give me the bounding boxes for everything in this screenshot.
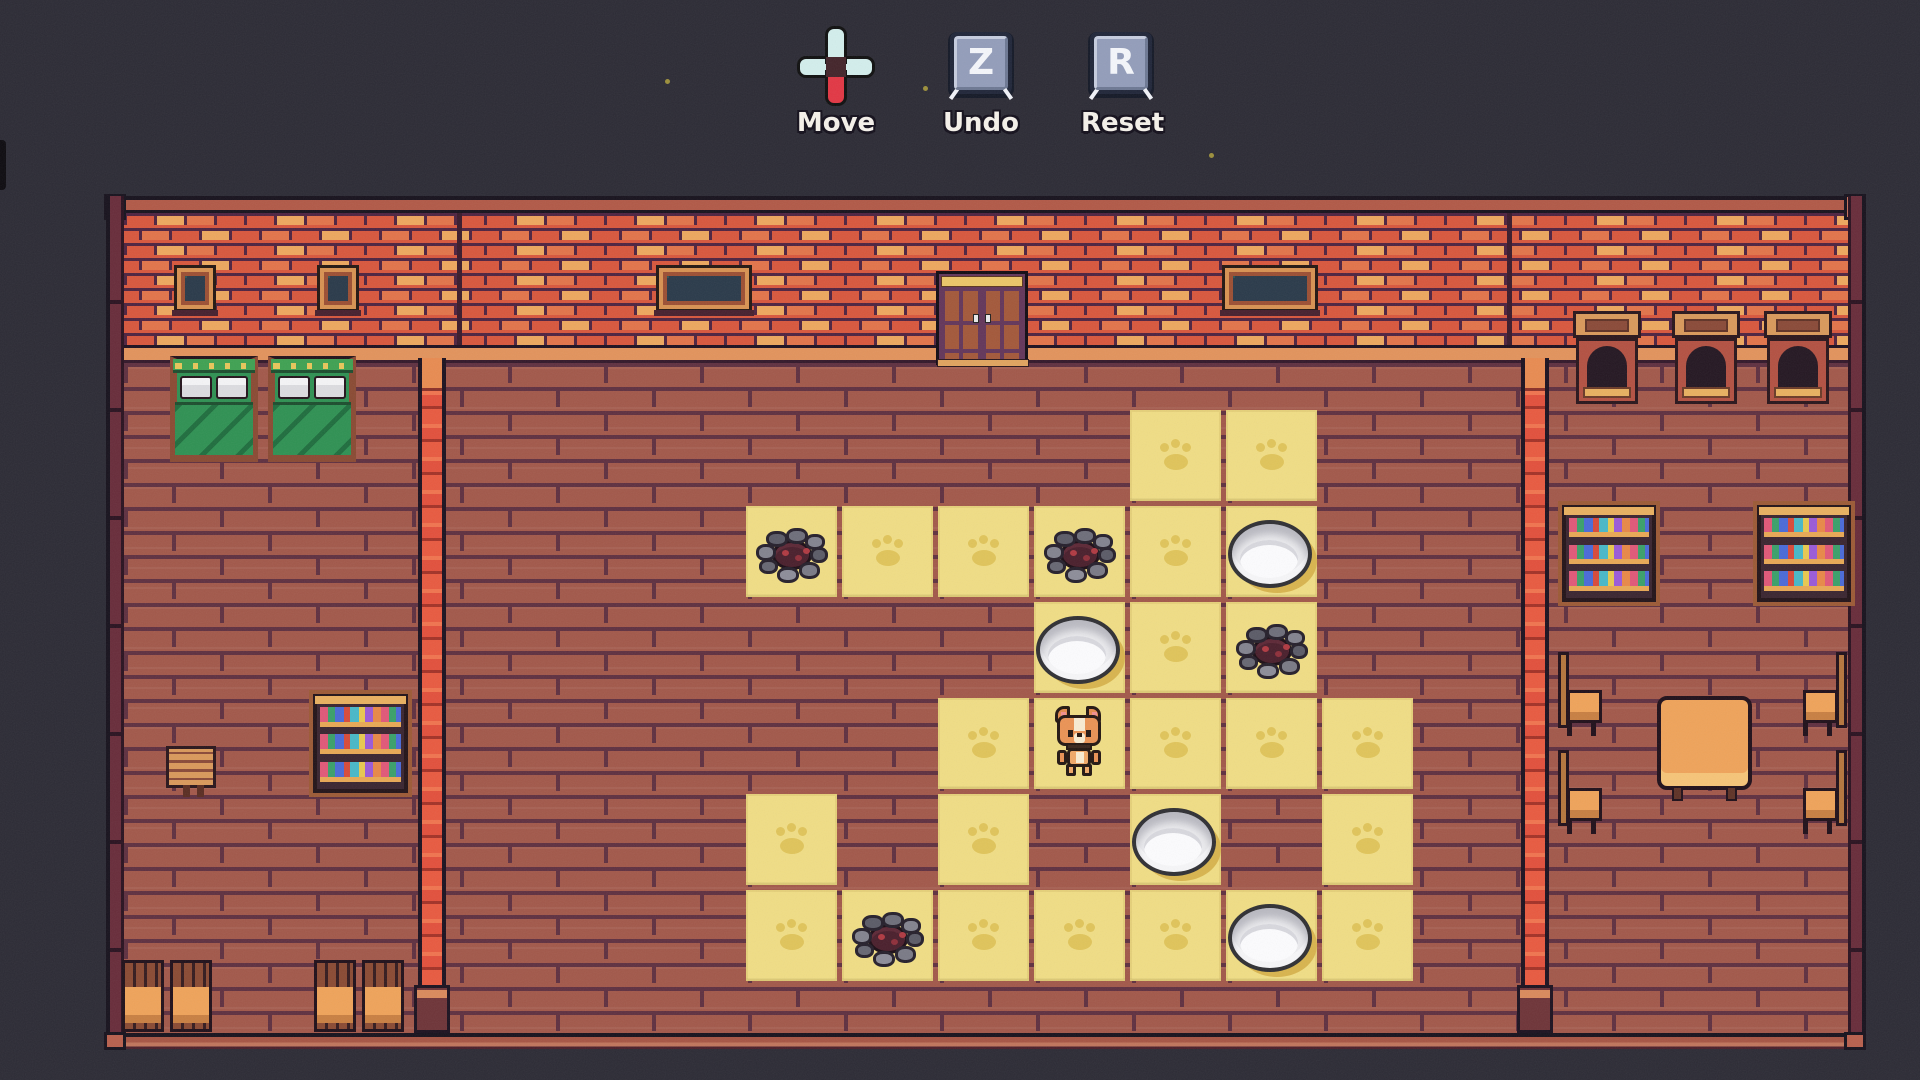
undo-label: Undo [941, 108, 1021, 138]
control-move[interactable]: Move [791, 24, 881, 144]
food-pit-target [1044, 528, 1116, 584]
move-label: Move [791, 108, 881, 138]
paw-print-icon [1260, 454, 1284, 470]
tile-paw-r1c1 [842, 506, 933, 597]
keycap-face: Z [954, 36, 1008, 90]
tile-paw-r5c6 [1322, 890, 1413, 981]
tile-paw-r5c2 [938, 890, 1029, 981]
tile-target-r1c0 [746, 506, 837, 597]
white-bowl [1132, 808, 1216, 876]
tile-paw-r4c6 [1322, 794, 1413, 885]
tile-bowl-r5c5 [1226, 890, 1317, 981]
white-bowl [1228, 520, 1312, 588]
food-pit-target [1236, 624, 1308, 680]
tile-target-r5c1 [842, 890, 933, 981]
paw-print-icon [876, 550, 900, 566]
paw-print-icon [1356, 742, 1380, 758]
paw-print-icon [1068, 934, 1092, 950]
tile-paw-r0c5 [1226, 410, 1317, 501]
tile-bowl-r4c4 [1130, 794, 1221, 885]
dog-player [1055, 708, 1103, 778]
tile-paw-r3c2 [938, 698, 1029, 789]
tile-paw-r4c2 [938, 794, 1029, 885]
paw-print-icon [780, 934, 804, 950]
paw-print-icon [1356, 838, 1380, 854]
paw-print-icon [1164, 742, 1188, 758]
tile-paw-r3c6 [1322, 698, 1413, 789]
tile-paw-r3c5 [1226, 698, 1317, 789]
tile-paw-r4c0 [746, 794, 837, 885]
tile-target-r2c5 [1226, 602, 1317, 693]
key-r-icon: R [1090, 32, 1152, 94]
tile-paw-r2c4 [1130, 602, 1221, 693]
tile-paw-r5c4 [1130, 890, 1221, 981]
puzzle-board [0, 0, 1920, 1080]
keycap-face: R [1094, 36, 1148, 90]
tile-paw-r3c4 [1130, 698, 1221, 789]
tile-paw-r5c3 [1034, 890, 1125, 981]
paw-print-icon [1260, 742, 1284, 758]
key-z-icon: Z [950, 32, 1012, 94]
paw-print-icon [1356, 934, 1380, 950]
tile-player-r3c3 [1034, 698, 1125, 789]
reset-label: Reset [1081, 108, 1161, 138]
control-reset[interactable]: R Reset [1081, 24, 1161, 144]
paw-print-icon [972, 838, 996, 854]
tile-paw-r1c2 [938, 506, 1029, 597]
food-pit-target [756, 528, 828, 584]
paw-print-icon [780, 838, 804, 854]
game-screen: Move Z Undo R Reset [0, 0, 1920, 1080]
food-pit-target [852, 912, 924, 968]
tile-paw-r0c4 [1130, 410, 1221, 501]
dpad-icon [797, 26, 875, 106]
paw-print-icon [1164, 646, 1188, 662]
tile-paw-r1c4 [1130, 506, 1221, 597]
tile-bowl-r1c5 [1226, 506, 1317, 597]
white-bowl [1228, 904, 1312, 972]
white-bowl [1036, 616, 1120, 684]
paw-print-icon [972, 742, 996, 758]
tile-bowl-r2c3 [1034, 602, 1125, 693]
paw-print-icon [1164, 934, 1188, 950]
paw-print-icon [1164, 550, 1188, 566]
paw-print-icon [972, 550, 996, 566]
paw-print-icon [972, 934, 996, 950]
tile-paw-r5c0 [746, 890, 837, 981]
tile-target-r1c3 [1034, 506, 1125, 597]
paw-print-icon [1164, 454, 1188, 470]
control-undo[interactable]: Z Undo [941, 24, 1021, 144]
